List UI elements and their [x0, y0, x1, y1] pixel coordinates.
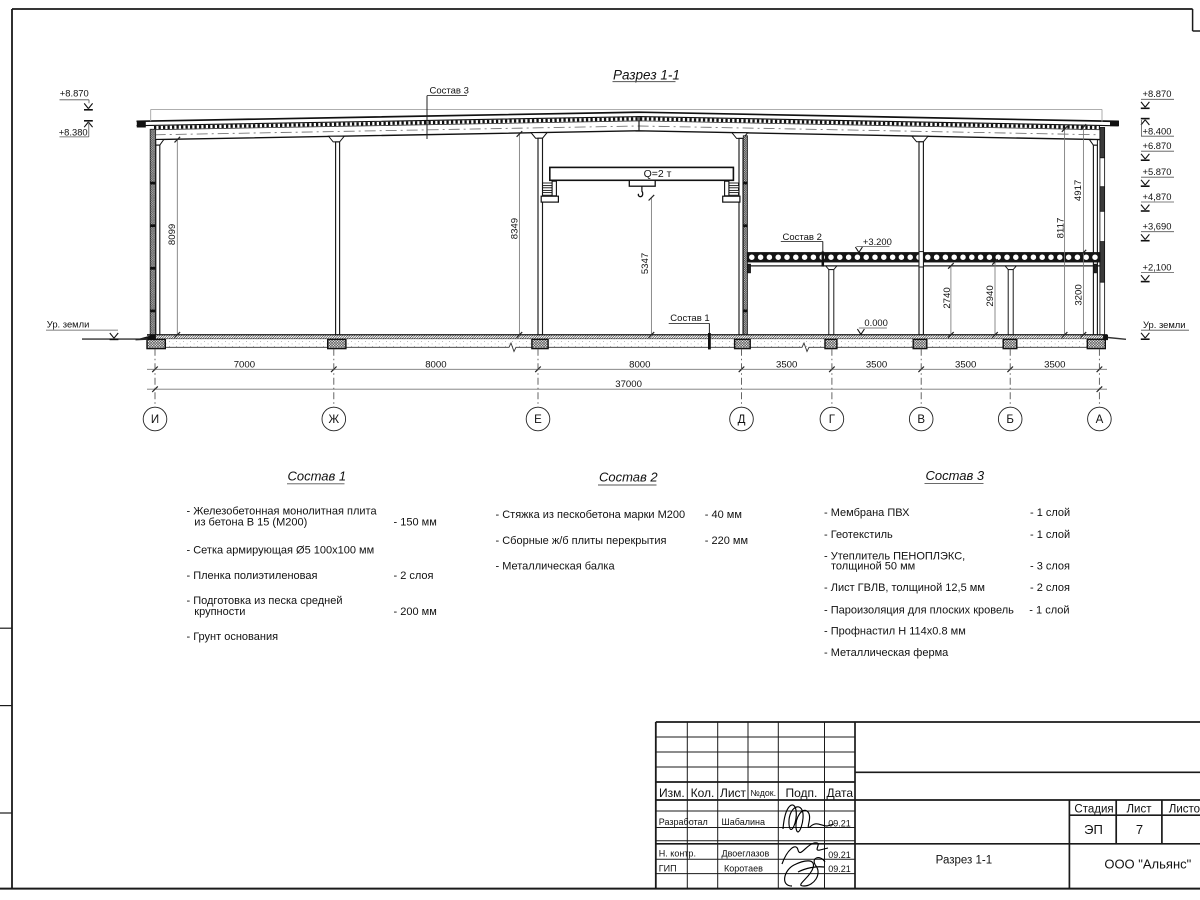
svg-text:А: А [1096, 414, 1104, 426]
svg-text:3200: 3200 [1074, 284, 1085, 305]
svg-text:Разрез 1-1: Разрез 1-1 [936, 854, 992, 866]
svg-text:Состав 1: Состав 1 [670, 313, 709, 324]
svg-text:2740: 2740 [942, 287, 953, 308]
svg-text:8117: 8117 [1055, 218, 1066, 239]
svg-text:+3.200: +3.200 [863, 236, 892, 247]
svg-text:- 2 слоя: - 2 слоя [394, 570, 434, 582]
svg-text:+3,690: +3,690 [1143, 221, 1172, 232]
svg-text:из бетона В 15 (М200): из бетона В 15 (М200) [194, 516, 307, 528]
svg-text:+8.870: +8.870 [60, 87, 89, 98]
svg-text:толщиной 50 мм: толщиной 50 мм [831, 561, 915, 573]
svg-text:0.000: 0.000 [864, 317, 887, 328]
svg-text:крупности: крупности [194, 606, 245, 618]
svg-text:3500: 3500 [1044, 359, 1065, 370]
svg-text:- Лист ГВЛВ, толщиной 12,5 мм: - Лист ГВЛВ, толщиной 12,5 мм [824, 582, 985, 594]
svg-text:8349: 8349 [509, 218, 520, 239]
svg-text:Q=2 т: Q=2 т [644, 168, 672, 180]
svg-text:- Пароизоляция для плоских кро: - Пароизоляция для плоских кровель [824, 604, 1014, 616]
svg-text:Н. контр.: Н. контр. [659, 849, 696, 859]
svg-text:И: И [151, 414, 159, 426]
svg-text:2940: 2940 [985, 285, 996, 306]
svg-text:3500: 3500 [955, 359, 976, 370]
svg-text:- Профнастил Н 114х0.8 мм: - Профнастил Н 114х0.8 мм [824, 626, 966, 638]
svg-text:Состав 3: Состав 3 [430, 86, 469, 97]
svg-text:Е: Е [534, 414, 542, 426]
svg-text:- Мембрана ПВХ: - Мембрана ПВХ [824, 507, 910, 519]
svg-text:В: В [917, 414, 925, 426]
svg-text:Стадия: Стадия [1074, 803, 1113, 815]
svg-text:+8.400: +8.400 [1143, 126, 1172, 137]
svg-text:7: 7 [1136, 822, 1143, 837]
svg-text:- Металлическая балка: - Металлическая балка [496, 561, 616, 573]
svg-text:Ур. земли: Ур. земли [47, 318, 90, 329]
svg-text:Лист: Лист [720, 786, 747, 800]
svg-text:8000: 8000 [629, 359, 650, 370]
svg-text:Г: Г [829, 414, 836, 426]
svg-text:+4,870: +4,870 [1143, 191, 1172, 202]
svg-text:- 200 мм: - 200 мм [394, 606, 437, 618]
svg-text:Состав 2: Состав 2 [599, 470, 658, 485]
svg-text:- 2 слоя: - 2 слоя [1030, 582, 1070, 594]
svg-text:ГИП: ГИП [659, 864, 677, 874]
svg-text:37000: 37000 [615, 379, 642, 390]
svg-text:8000: 8000 [425, 359, 446, 370]
svg-text:- Сборные ж/б плиты перекрытия: - Сборные ж/б плиты перекрытия [496, 535, 667, 547]
svg-text:Б: Б [1006, 414, 1014, 426]
svg-text:+5.870: +5.870 [1143, 166, 1172, 177]
svg-text:Изм.: Изм. [659, 786, 685, 800]
svg-text:+8.380: +8.380 [59, 126, 88, 137]
svg-text:+2,100: +2,100 [1143, 262, 1172, 273]
svg-text:- Грунт основания: - Грунт основания [187, 631, 279, 643]
svg-text:№док.: №док. [750, 788, 776, 798]
svg-text:- 1 слой: - 1 слой [1030, 507, 1070, 519]
svg-text:7000: 7000 [234, 359, 255, 370]
svg-text:Состав 3: Состав 3 [926, 468, 985, 483]
svg-text:Двоеглазов: Двоеглазов [722, 849, 770, 859]
svg-text:09.21: 09.21 [828, 864, 851, 874]
svg-text:- 1 слой: - 1 слой [1030, 529, 1070, 541]
svg-text:+8.870: +8.870 [1143, 88, 1172, 99]
svg-text:5347: 5347 [640, 253, 651, 274]
svg-text:Разработал: Разработал [659, 817, 708, 827]
svg-text:- 40 мм: - 40 мм [705, 509, 742, 521]
svg-text:Д: Д [738, 414, 746, 426]
svg-text:Кол.: Кол. [691, 786, 715, 800]
svg-text:3500: 3500 [866, 359, 887, 370]
svg-text:8099: 8099 [167, 224, 178, 245]
svg-text:Подп.: Подп. [785, 786, 817, 800]
svg-text:Лист: Лист [1127, 803, 1153, 815]
svg-text:09.21: 09.21 [828, 818, 851, 828]
svg-text:- Пленка полиэтиленовая: - Пленка полиэтиленовая [187, 570, 318, 582]
svg-text:Ж: Ж [328, 414, 339, 426]
svg-text:- 220 мм: - 220 мм [705, 535, 748, 547]
svg-text:09.21: 09.21 [828, 850, 851, 860]
svg-text:Листов: Листов [1169, 803, 1200, 815]
svg-text:- Геотекстиль: - Геотекстиль [824, 529, 893, 541]
svg-text:- 1 слой: - 1 слой [1029, 604, 1069, 616]
svg-text:ООО "Альянс": ООО "Альянс" [1104, 857, 1191, 872]
svg-text:- Металлическая ферма: - Металлическая ферма [824, 647, 949, 659]
svg-text:- Сетка армирующая Ø5 100х100: - Сетка армирующая Ø5 100х100 мм [187, 545, 375, 557]
svg-text:Коротаев: Коротаев [724, 863, 763, 873]
svg-text:Разрез 1-1: Разрез 1-1 [613, 67, 680, 82]
svg-text:3500: 3500 [776, 359, 797, 370]
svg-text:- Стяжка из пескобетона марки: - Стяжка из пескобетона марки М200 [496, 509, 686, 521]
svg-text:- 3 слоя: - 3 слоя [1030, 561, 1070, 573]
svg-text:Состав 1: Состав 1 [288, 469, 347, 484]
svg-text:Дата: Дата [827, 786, 854, 800]
svg-text:ЭП: ЭП [1084, 822, 1103, 837]
svg-text:- 150 мм: - 150 мм [394, 516, 437, 528]
svg-text:Ур. земли: Ур. земли [1143, 319, 1186, 330]
svg-text:Шабалина: Шабалина [722, 817, 765, 827]
svg-text:+6.870: +6.870 [1143, 140, 1172, 151]
svg-text:4917: 4917 [1073, 180, 1084, 201]
